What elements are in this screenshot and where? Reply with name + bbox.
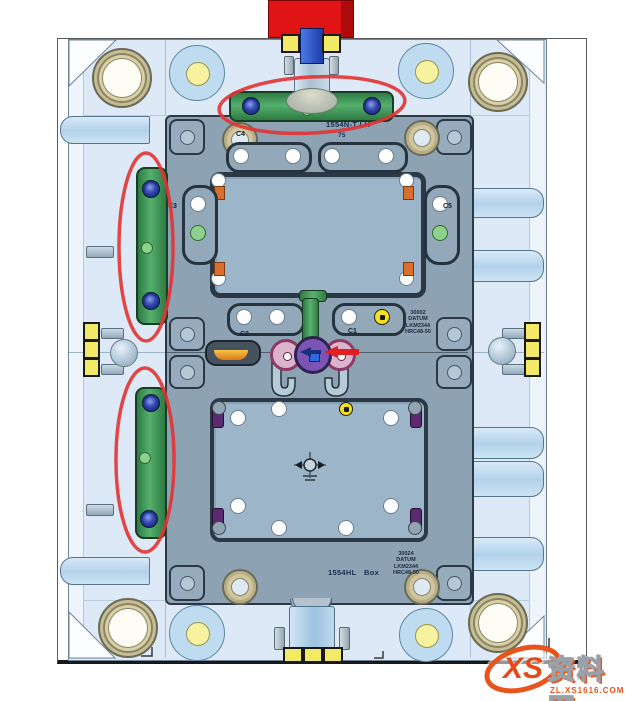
screw-head	[142, 394, 160, 412]
ring-bore	[413, 578, 431, 596]
pin-dot	[283, 352, 292, 361]
ring-bore	[231, 578, 249, 596]
clamp-tab	[169, 317, 205, 351]
pin-core	[415, 60, 439, 84]
ball-plunger-right	[488, 337, 516, 365]
datum-target-symbol	[374, 309, 390, 325]
pin-core	[186, 622, 210, 646]
screw-head	[142, 292, 160, 310]
guide-bushing-top-left	[92, 48, 152, 108]
wear-clip	[403, 186, 414, 200]
guide-bushing-top-right	[468, 52, 528, 112]
pin-core	[186, 62, 210, 86]
return-pin-top-right	[398, 43, 454, 99]
pocket-hole	[383, 410, 399, 426]
guide-pin-ring	[404, 120, 440, 156]
support-cylinder-left-bottom	[60, 557, 150, 585]
clamp-tab	[169, 355, 205, 389]
corner-screw	[408, 401, 422, 415]
sprue-bushing-blue	[300, 28, 324, 64]
sprue-center	[294, 336, 332, 374]
screw-head	[140, 510, 158, 528]
clamp-label-c1: C1	[348, 328, 357, 335]
slot-hole-green	[432, 225, 448, 241]
bottom-lock-block	[323, 647, 343, 663]
pin-core	[415, 624, 439, 648]
datum-target-mark	[380, 315, 385, 320]
screw-head	[242, 97, 260, 115]
seam-line	[165, 40, 166, 116]
block-shade	[341, 1, 353, 37]
datum-line: HRC48-50	[384, 570, 428, 576]
top-part-marking: 1554N-T LH	[326, 121, 370, 129]
pocket-hole	[230, 410, 246, 426]
return-pin-bottom-right	[399, 608, 453, 662]
support-cylinder-left-top	[60, 116, 150, 144]
dowel-green	[139, 452, 151, 464]
return-pin-top-left	[169, 45, 225, 101]
stud-pin	[86, 504, 114, 516]
lock-block	[281, 34, 300, 53]
pocket-hole	[383, 498, 399, 514]
corner-screw	[408, 521, 422, 535]
ball-plunger-left	[110, 339, 138, 367]
cavity-pocket-upper	[210, 172, 426, 298]
clamp-tab	[436, 317, 472, 351]
side-lock-right	[524, 322, 541, 341]
screw-head	[142, 180, 160, 198]
guide-pin-ring	[222, 569, 258, 605]
corner-screw	[212, 521, 226, 535]
guide-bushing-bottom-left	[98, 598, 158, 658]
pocket-hole	[230, 498, 246, 514]
clamp-label-c4: C4	[236, 131, 245, 138]
lock-block	[322, 34, 341, 53]
bushing-bore	[108, 608, 148, 648]
slot-hole	[285, 148, 301, 164]
slot-hole	[378, 148, 394, 164]
stud-pin	[329, 56, 339, 75]
bottom-part-desc: Box	[364, 569, 379, 577]
clamp-label-c5: C5	[443, 203, 452, 210]
clamp-tab	[436, 355, 472, 389]
side-lock-right	[524, 358, 541, 377]
slot-hole-green	[190, 225, 206, 241]
stud-pin	[284, 56, 294, 75]
core-datum-block: 30002 DATUM LKM2344 HRC48-50	[396, 310, 440, 335]
pocket-hole	[338, 520, 354, 536]
pocket-hole	[271, 401, 287, 417]
bottom-lock-block	[283, 647, 303, 663]
screw-head	[363, 97, 381, 115]
clamp-tab	[169, 565, 205, 601]
dowel-green	[141, 242, 153, 254]
side-lock-left	[83, 358, 100, 377]
bushing-bore	[478, 603, 518, 643]
sprue-dome	[286, 88, 338, 114]
return-pin-bottom-left	[169, 605, 225, 661]
side-lock-left	[83, 340, 100, 359]
clamp-tab	[436, 119, 472, 155]
bolt-hole	[180, 130, 195, 145]
mold-assembly-drawing: C4 C3 C5 C2 C1 1554N-T LH 75 30002 DATUM…	[0, 0, 633, 701]
guide-bushing-bottom-right	[468, 593, 528, 653]
bushing-bore	[102, 58, 142, 98]
bolt-hole	[447, 576, 462, 591]
bottom-lock-block	[303, 647, 323, 663]
bolt-hole	[180, 365, 195, 380]
side-lock-right	[524, 340, 541, 359]
watermark-url: ZL.XS1616.COM	[550, 686, 624, 695]
slot-hole	[324, 148, 340, 164]
clamp-label-c3: C3	[168, 203, 177, 210]
bolt-hole	[180, 327, 195, 342]
slot-hole	[236, 309, 252, 325]
top-part-marking-sub: 75	[338, 133, 346, 140]
cavity-datum-block: 30024 DATUM LKM2344 HRC48-50	[384, 551, 428, 576]
slot-hole	[269, 309, 285, 325]
stud-pin	[86, 246, 114, 258]
ring-bore	[413, 129, 431, 147]
clamp-tab	[436, 565, 472, 601]
side-lock-left	[83, 322, 100, 341]
wear-clip	[214, 262, 225, 276]
bottom-part-number: 1554HL	[328, 569, 356, 577]
datum-target-symbol	[339, 402, 353, 416]
slot-hole	[341, 309, 357, 325]
bolt-hole	[447, 130, 462, 145]
bolt-hole	[180, 576, 195, 591]
pocket-hole	[271, 520, 287, 536]
wear-clip	[403, 262, 414, 276]
watermark-logo: XS	[503, 652, 543, 686]
latch-insert	[214, 350, 248, 360]
datum-target-mark	[344, 407, 349, 412]
clamp-label-c2: C2	[240, 331, 249, 338]
corner-screw	[212, 401, 226, 415]
datum-line: HRC48-50	[396, 329, 440, 335]
slot-hole	[233, 148, 249, 164]
center-key	[309, 351, 320, 362]
slot-hole	[190, 196, 206, 212]
seam-line	[165, 600, 166, 658]
clamp-tab	[169, 119, 205, 155]
stud-pin	[101, 328, 124, 339]
bolt-hole	[447, 365, 462, 380]
stud-pin	[502, 364, 525, 375]
bottom-cylinder	[289, 606, 335, 652]
pin-dot	[337, 352, 346, 361]
bolt-hole	[447, 327, 462, 342]
bushing-bore	[478, 62, 518, 102]
